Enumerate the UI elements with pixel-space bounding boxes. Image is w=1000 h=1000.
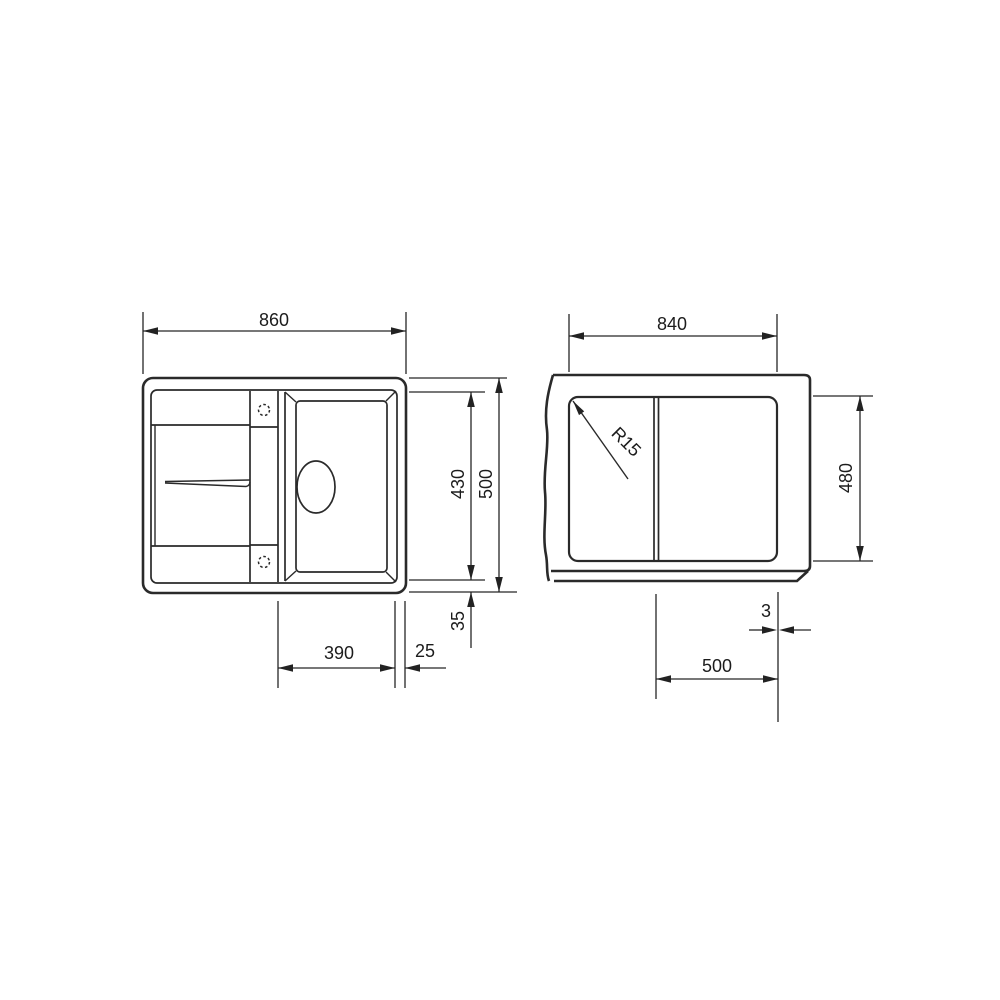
worktop-outline xyxy=(551,375,810,571)
arrowhead xyxy=(143,327,158,335)
faucet-hole-top xyxy=(259,405,270,416)
worktop-break-line xyxy=(544,375,553,581)
arrowhead xyxy=(856,546,864,561)
arrowhead xyxy=(495,577,503,592)
bowl-corner-tick-br xyxy=(386,572,396,582)
arrowhead xyxy=(467,565,475,580)
dim-cutout-width: 840 xyxy=(657,314,687,334)
faucet-hole-bottom xyxy=(259,557,270,568)
dim-edge-gap: 3 xyxy=(761,601,771,621)
worktop-front-edge xyxy=(554,571,808,581)
radius-callout: R15 xyxy=(607,423,644,460)
dim-inner-depth: 430 xyxy=(448,469,468,499)
dim-overall-width: 860 xyxy=(259,310,289,330)
technical-drawing-page: 860 500 430 35 390 25 xyxy=(0,0,1000,1000)
arrowhead xyxy=(405,664,420,672)
arrowhead xyxy=(856,396,864,411)
arrowhead xyxy=(380,664,395,672)
sink-top-view: 860 500 430 35 390 25 xyxy=(143,310,517,688)
arrowhead xyxy=(762,332,777,340)
dim-bowl-edge-offset: 25 xyxy=(415,641,435,661)
drain-hole xyxy=(297,461,335,513)
bowl-corner-tick-tr xyxy=(386,391,396,401)
arrowhead xyxy=(656,675,671,683)
arrowhead xyxy=(762,626,777,634)
dim-bowl-offset: 500 xyxy=(702,656,732,676)
arrowhead xyxy=(391,327,406,335)
arrowhead xyxy=(779,626,794,634)
sink-rim xyxy=(151,390,397,583)
drain-groove xyxy=(165,480,250,487)
sink-outline xyxy=(143,378,406,593)
dim-bowl-width: 390 xyxy=(324,643,354,663)
arrowhead xyxy=(569,332,584,340)
arrowhead xyxy=(763,675,778,683)
bowl-corner-tick-tl xyxy=(285,392,296,402)
bowl-corner-tick-bl xyxy=(285,571,296,581)
arrowhead xyxy=(573,401,584,415)
arrowhead xyxy=(278,664,293,672)
dim-overall-depth: 500 xyxy=(476,469,496,499)
sink-dimension-drawing: 860 500 430 35 390 25 xyxy=(0,0,1000,1000)
cutout-outline xyxy=(569,397,777,561)
dim-rim-offset: 35 xyxy=(448,611,468,631)
arrowhead xyxy=(495,378,503,393)
arrowhead xyxy=(467,392,475,407)
arrowhead xyxy=(467,592,475,607)
worktop-cutout-view: R15 840 480 500 3 xyxy=(544,314,873,722)
bowl-floor xyxy=(296,401,387,572)
dim-cutout-depth: 480 xyxy=(836,463,856,493)
